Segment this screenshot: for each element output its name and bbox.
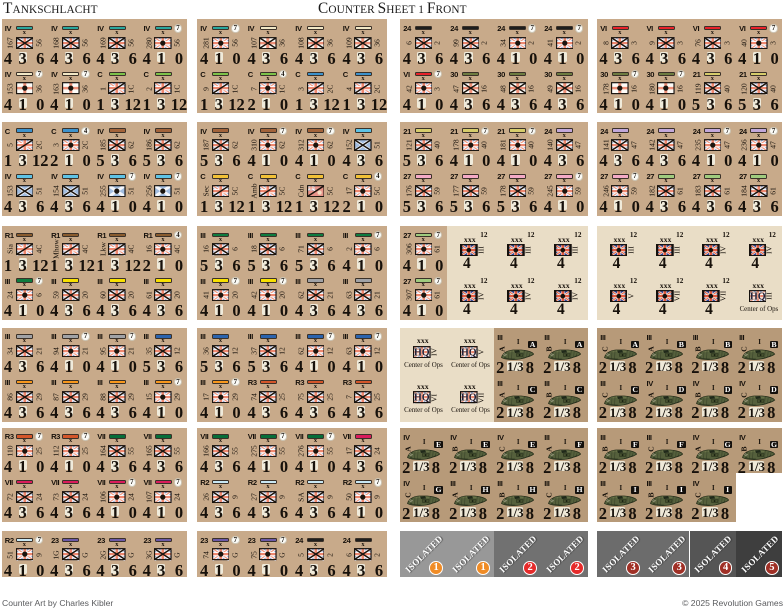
svg-text:HQ: HQ (414, 393, 430, 404)
svg-text:HQ: HQ (414, 347, 430, 358)
svg-text:HQ: HQ (750, 291, 766, 302)
svg-text:HQ: HQ (461, 347, 477, 358)
svg-text:HQ: HQ (461, 393, 477, 404)
